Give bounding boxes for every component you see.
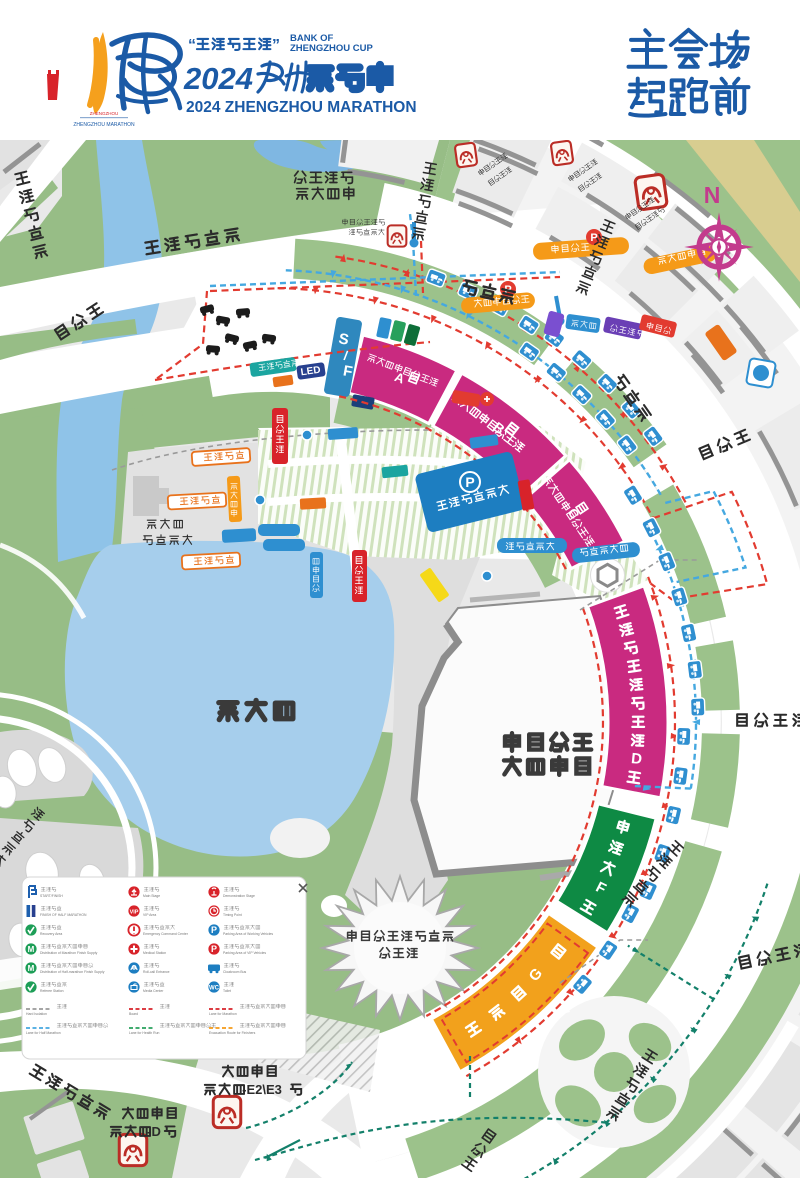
svg-text:Distribution of Marathon Finis: Distribution of Marathon Finish Supply xyxy=(40,951,98,955)
svg-text:FINISH OF HALF MARATHON: FINISH OF HALF MARATHON xyxy=(40,913,87,917)
svg-text:Timing Point: Timing Point xyxy=(223,913,242,917)
svg-text:Main Stage: Main Stage xyxy=(143,894,160,898)
svg-text:Demonstration Stage: Demonstration Stage xyxy=(223,894,255,898)
svg-text:VIP Area: VIP Area xyxy=(143,913,156,917)
svg-text:Evacuation Route for Finishers: Evacuation Route for Finishers xyxy=(209,1031,256,1035)
svg-text:ZHENGZHOU CUP: ZHENGZHOU CUP xyxy=(290,43,374,54)
svg-text:2024: 2024 xyxy=(183,61,253,96)
svg-text:2024 ZHENGZHOU MARATHON: 2024 ZHENGZHOU MARATHON xyxy=(186,99,417,116)
svg-text:WC: WC xyxy=(209,986,220,992)
svg-text:M: M xyxy=(28,945,35,954)
svg-text:Hard Isolation: Hard Isolation xyxy=(26,1012,47,1016)
svg-text:Referee Station: Referee Station xyxy=(40,989,64,993)
svg-text:Emergency Command Center: Emergency Command Center xyxy=(143,932,189,936)
svg-text:Medical Station: Medical Station xyxy=(143,951,166,955)
svg-text:-E2\E3: -E2\E3 xyxy=(242,1082,282,1097)
svg-text:ZHENGZHOU MARATHON: ZHENGZHOU MARATHON xyxy=(73,122,135,128)
svg-text:M: M xyxy=(28,964,35,973)
svg-text:Lane for Health Run: Lane for Health Run xyxy=(129,1031,159,1035)
svg-text:Parking Area of VIP Vehicles: Parking Area of VIP Vehicles xyxy=(223,951,266,955)
svg-text:Board: Board xyxy=(129,1012,138,1016)
svg-text:Distribution of Half-marathon: Distribution of Half-marathon Finish Sup… xyxy=(40,970,105,974)
svg-text:-D: -D xyxy=(147,1124,161,1139)
svg-text:P: P xyxy=(465,474,474,490)
svg-text:Roll-call Entrance: Roll-call Entrance xyxy=(143,970,170,974)
svg-text:Cloakroom Bus: Cloakroom Bus xyxy=(223,970,246,974)
svg-text:Parking Area of Working Vehicl: Parking Area of Working Vehicles xyxy=(223,932,273,936)
svg-text:Toilet: Toilet xyxy=(223,989,231,993)
svg-text:N: N xyxy=(704,182,721,208)
svg-text:Recovery Area: Recovery Area xyxy=(40,932,62,936)
svg-text:D: D xyxy=(630,750,643,768)
svg-text:ZHENGZHOU: ZHENGZHOU xyxy=(90,111,119,116)
svg-text:P: P xyxy=(211,925,217,935)
svg-text:P: P xyxy=(211,944,217,954)
svg-text:Media Center: Media Center xyxy=(143,989,164,993)
svg-text:”: ” xyxy=(272,37,280,54)
svg-text:VIP: VIP xyxy=(130,910,139,916)
svg-text:Lane for Half Marathon: Lane for Half Marathon xyxy=(26,1031,61,1035)
svg-text:“: “ xyxy=(188,37,196,54)
svg-text:Lane for Marathon: Lane for Marathon xyxy=(209,1012,237,1016)
svg-text:START/FINISH: START/FINISH xyxy=(40,894,63,898)
